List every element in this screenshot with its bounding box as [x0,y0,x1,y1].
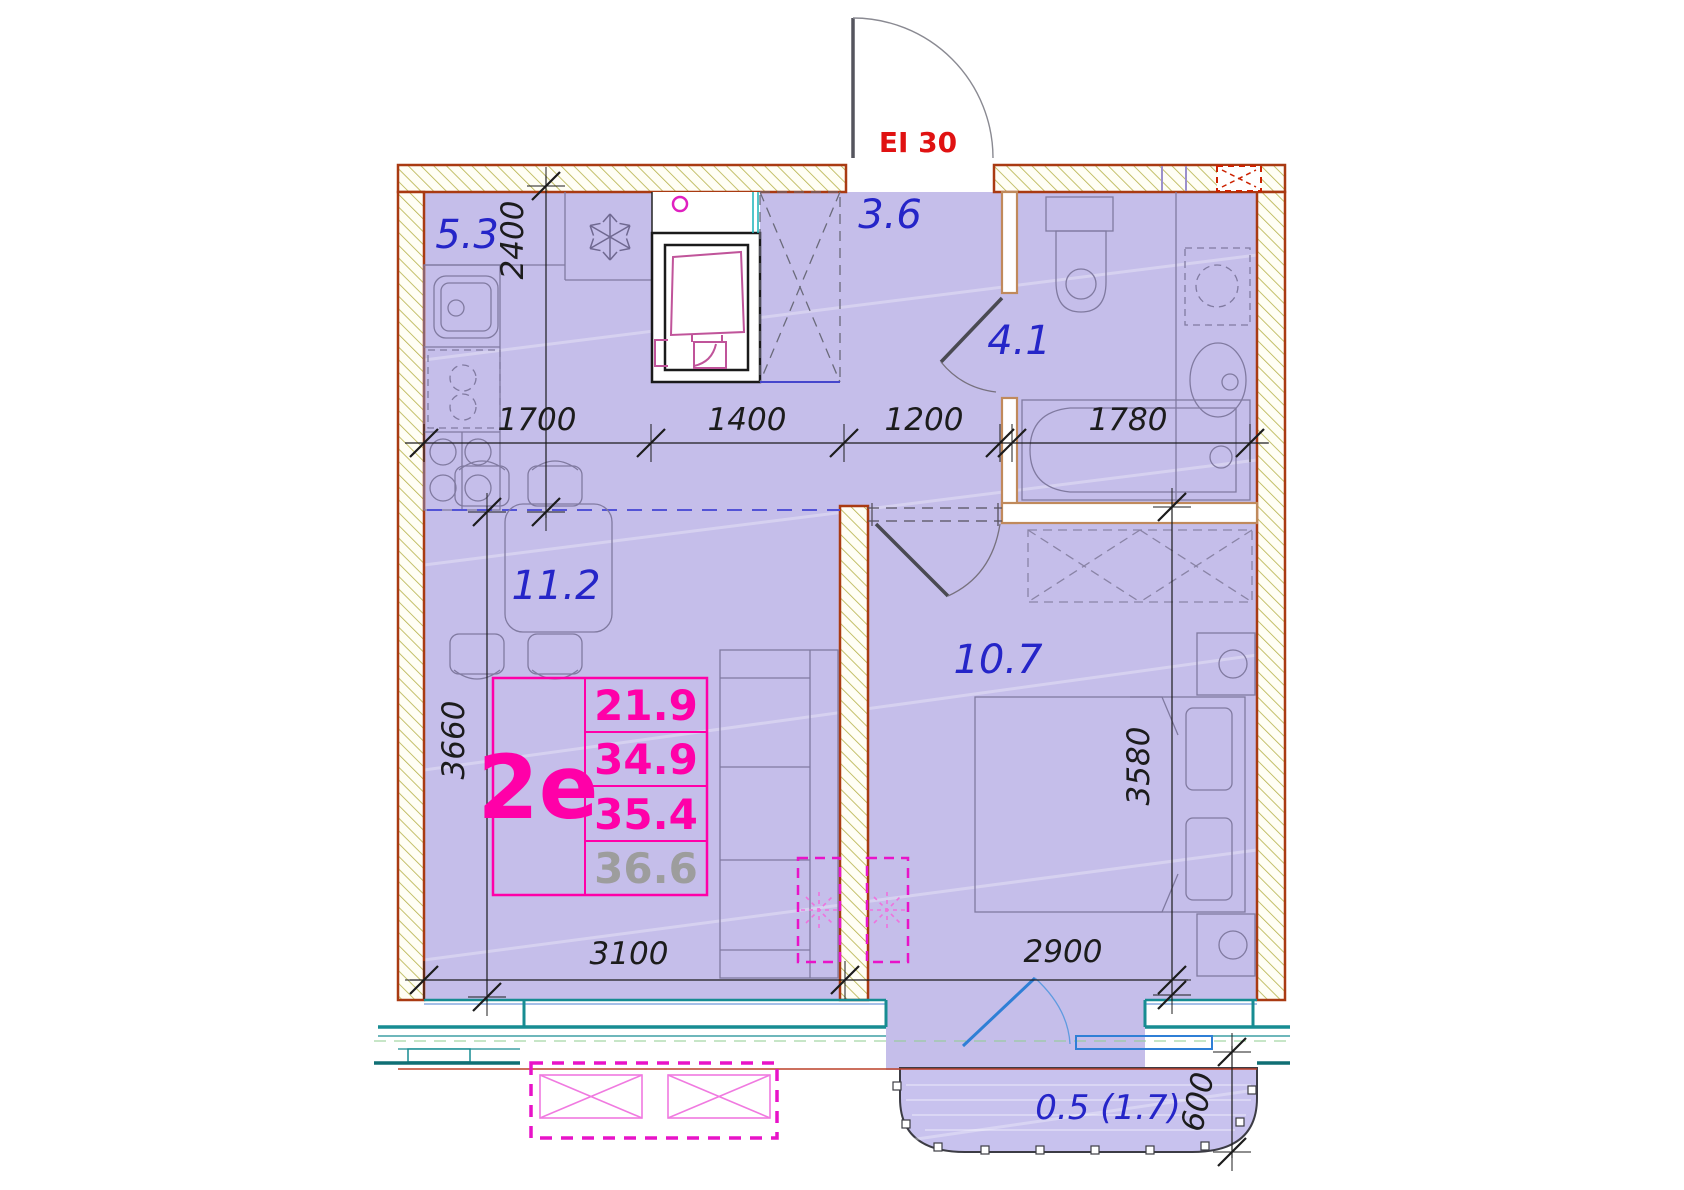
dim-1700: 1700 [498,402,577,438]
ac-outdoor-unit-icon [540,1075,642,1118]
right-wall [1257,192,1285,1000]
vent-shaft-icon [1217,166,1261,191]
dim-3100: 3100 [590,936,669,972]
top-wall-left [398,165,846,192]
flat-type-label: 2е [478,736,599,839]
windows [374,1000,1290,1069]
hallway-area-label: 3.6 [858,192,922,238]
dim-3580: 3580 [1121,727,1157,806]
ac-outdoor-zone [531,1063,777,1138]
living-window [374,1000,886,1063]
fire-rating-label: EI 30 [879,126,957,159]
flat-area-row-1: 21.9 [594,681,698,730]
dim-1400: 1400 [708,402,787,438]
utility-shaft [652,192,760,382]
flat-area-row-2: 34.9 [594,735,698,784]
bedroom-window [1145,1000,1290,1063]
partition-wall-living-bedroom [840,506,868,1000]
ac-outdoor-unit-icon [668,1075,770,1118]
floor-plan-canvas: EI 30 5.3 3.6 4.1 11.2 10.7 0.5 (1.7) 17… [0,0,1684,1190]
bathroom-area-label: 4.1 [987,318,1051,364]
flat-area-row-4: 36.6 [594,844,698,893]
dim-3660: 3660 [436,701,472,780]
floor-plan-drawing: EI 30 5.3 3.6 4.1 11.2 10.7 0.5 (1.7) 17… [0,0,1684,1190]
dim-1780: 1780 [1089,402,1168,438]
bedroom-area-label: 10.7 [953,637,1043,683]
living-area-label: 11.2 [511,563,600,609]
dim-1200: 1200 [885,402,964,438]
dim-2400: 2400 [495,201,531,280]
kitchen-area-label: 5.3 [435,212,499,258]
flat-area-row-3: 35.4 [594,790,698,839]
dim-2900: 2900 [1024,934,1103,970]
balcony-area-label: 0.5 (1.7) [1035,1088,1180,1128]
left-wall [398,192,424,1000]
